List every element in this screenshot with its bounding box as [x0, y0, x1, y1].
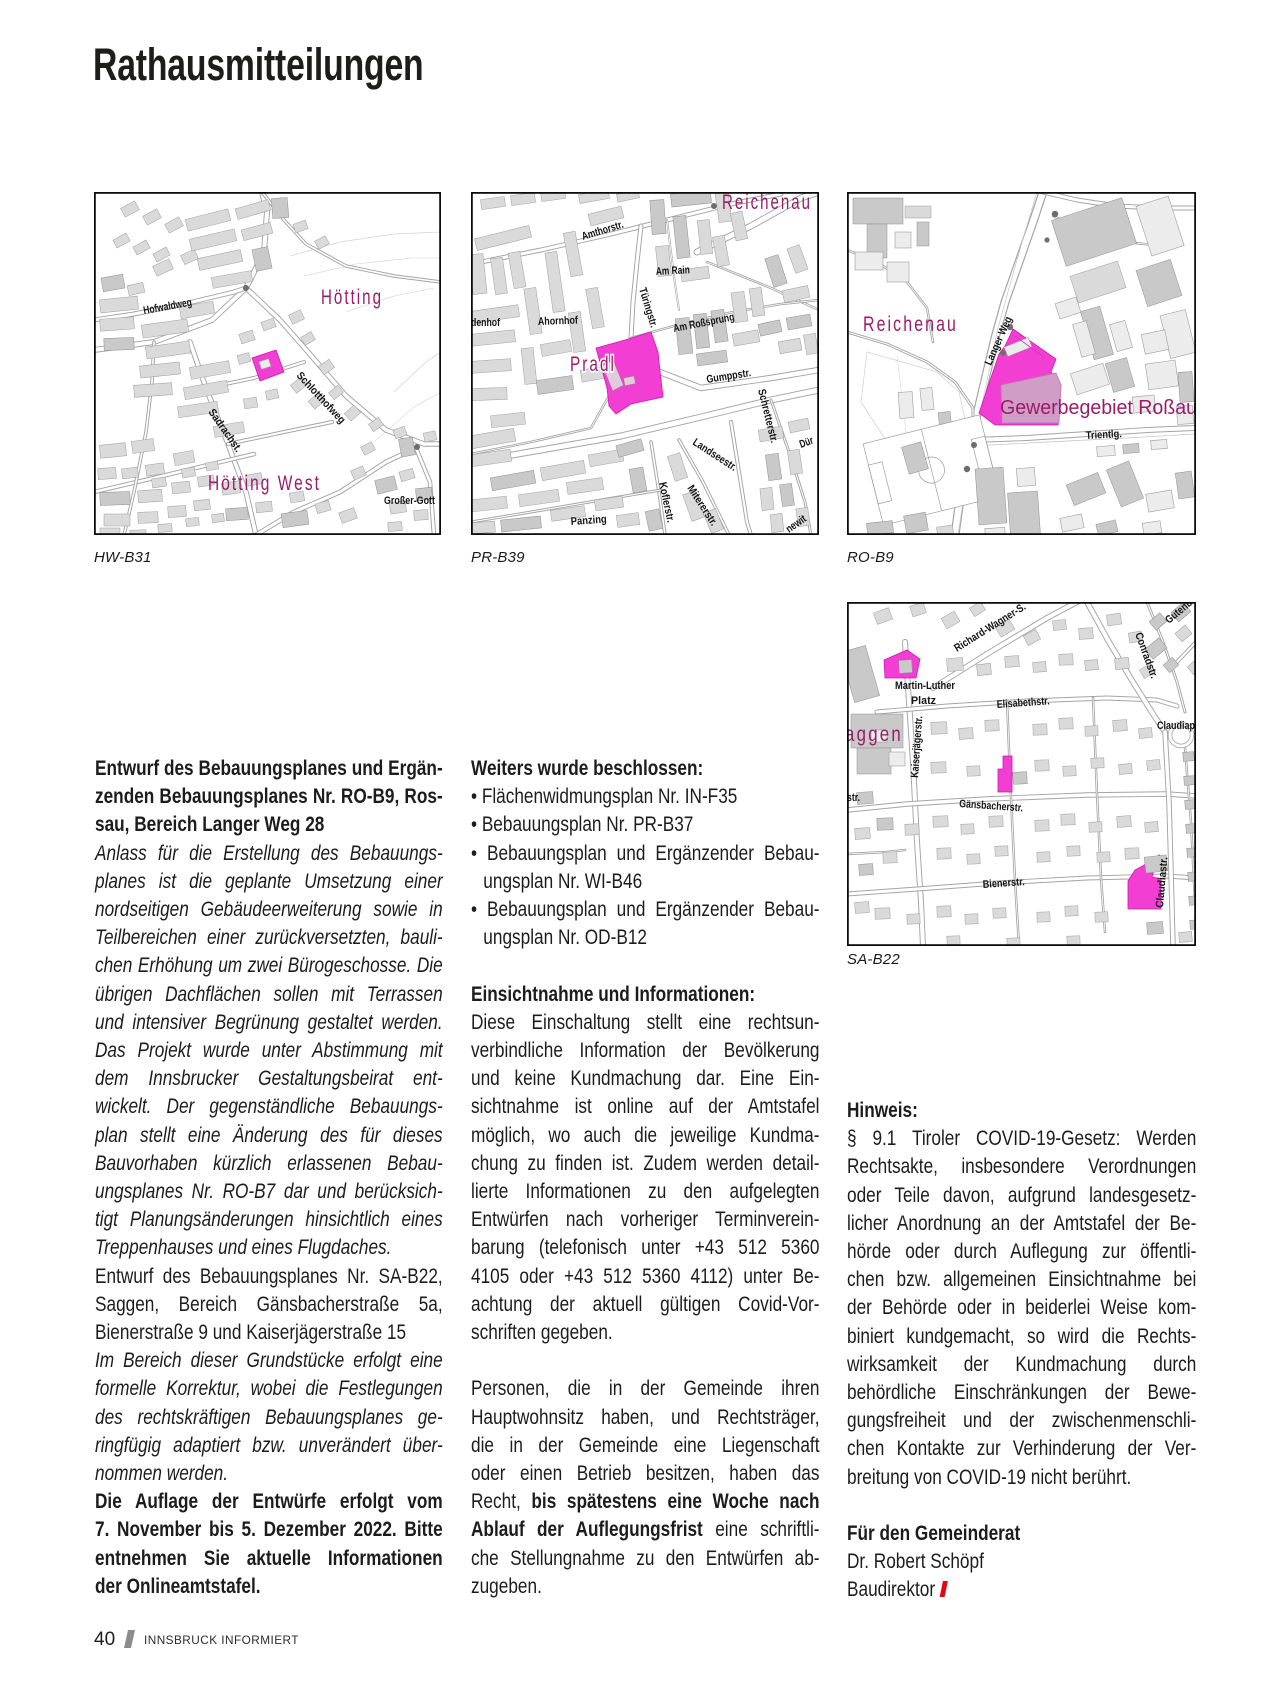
svg-text:Am Rain: Am Rain	[656, 264, 691, 278]
svg-text:Elisabethstr.: Elisabethstr.	[996, 695, 1050, 711]
svg-text:str.: str.	[847, 792, 860, 804]
svg-text:aggen: aggen	[847, 723, 903, 746]
svg-text:Großer-Gott: Großer-Gott	[384, 495, 435, 507]
svg-text:Türingstr.: Türingstr.	[636, 286, 659, 329]
svg-text:Ahornhof: Ahornhof	[538, 315, 579, 328]
svg-text:Panzing: Panzing	[570, 514, 607, 528]
svg-text:Platz: Platz	[911, 695, 936, 707]
svg-text:Hötting: Hötting	[321, 286, 383, 309]
svg-text:Reichenau: Reichenau	[722, 192, 812, 214]
svg-text:Trientlg.: Trientlg.	[1086, 428, 1123, 442]
svg-text:Gewerbegebiet Roßau: Gewerbegebiet Roßau	[1000, 397, 1196, 419]
svg-text:denhof: denhof	[471, 317, 500, 329]
svg-text:Martin-Luther: Martin-Luther	[895, 680, 956, 692]
svg-text:Reichenau: Reichenau	[863, 313, 958, 336]
svg-text:Richard-Wagner-S.: Richard-Wagner-S.	[952, 602, 1028, 655]
svg-text:Dür: Dür	[798, 435, 816, 451]
svg-text:Bienerstr.: Bienerstr.	[982, 876, 1025, 891]
svg-text:Hötting West: Hötting West	[208, 472, 321, 495]
svg-text:Landseestr.: Landseestr.	[690, 436, 738, 473]
svg-text:Schlotthofweg: Schlotthofweg	[294, 370, 348, 426]
svg-text:Pradl: Pradl	[570, 353, 616, 376]
svg-text:Gutenb: Gutenb	[1163, 602, 1195, 626]
svg-text:Claudiap: Claudiap	[1157, 720, 1195, 732]
